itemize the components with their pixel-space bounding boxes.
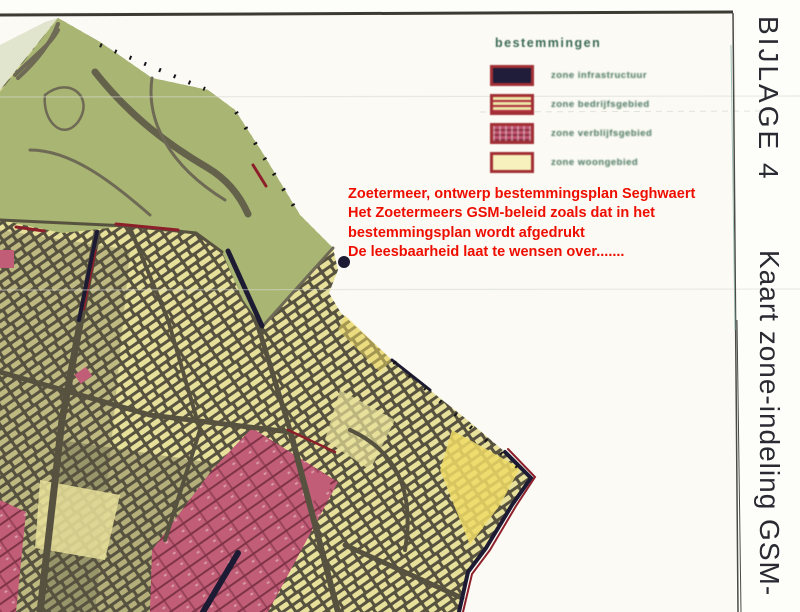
legend-swatch-woongebied [490, 152, 534, 173]
legend-label-woongebied: zone woongebied [551, 157, 638, 168]
legend-swatch-infrastructuur [490, 65, 534, 86]
scanned-map-page: bestemmingen zone infrastructuur zone be… [0, 0, 800, 612]
legend-item-bedrijfsgebied: zone bedrijfsgebied [490, 93, 715, 115]
legend-label-verblijfsgebied: zone verblijfsgebied [551, 128, 652, 139]
red-annotation: Zoetermeer, ontwerp bestemmingsplan Segh… [348, 185, 695, 263]
bijlage-label: BIJLAGE 4 [752, 16, 784, 182]
map-legend: bestemmingen zone infrastructuur zone be… [480, 28, 715, 180]
legend-item-woongebied: zone woongebied [490, 151, 715, 173]
legend-label-bedrijfsgebied: zone bedrijfsgebied [551, 99, 650, 110]
kaart-label: Kaart zone-indeling GSM- [753, 250, 785, 596]
legend-swatch-verblijfsgebied [490, 123, 534, 144]
legend-swatch-bedrijfsgebied [490, 94, 534, 115]
annotation-line-3: bestemmingsplan wordt afgedrukt [348, 224, 695, 243]
annotation-line-2: Het Zoetermeers GSM-beleid zoals dat in … [348, 204, 695, 223]
legend-item-infrastructuur: zone infrastructuur [490, 64, 715, 86]
legend-title: bestemmingen [495, 36, 715, 50]
legend-label-infrastructuur: zone infrastructuur [551, 70, 647, 81]
annotation-line-4: De leesbaarheid laat te wensen over.....… [348, 243, 695, 262]
legend-item-verblijfsgebied: zone verblijfsgebied [490, 122, 715, 144]
annotation-line-1: Zoetermeer, ontwerp bestemmingsplan Segh… [348, 185, 695, 204]
